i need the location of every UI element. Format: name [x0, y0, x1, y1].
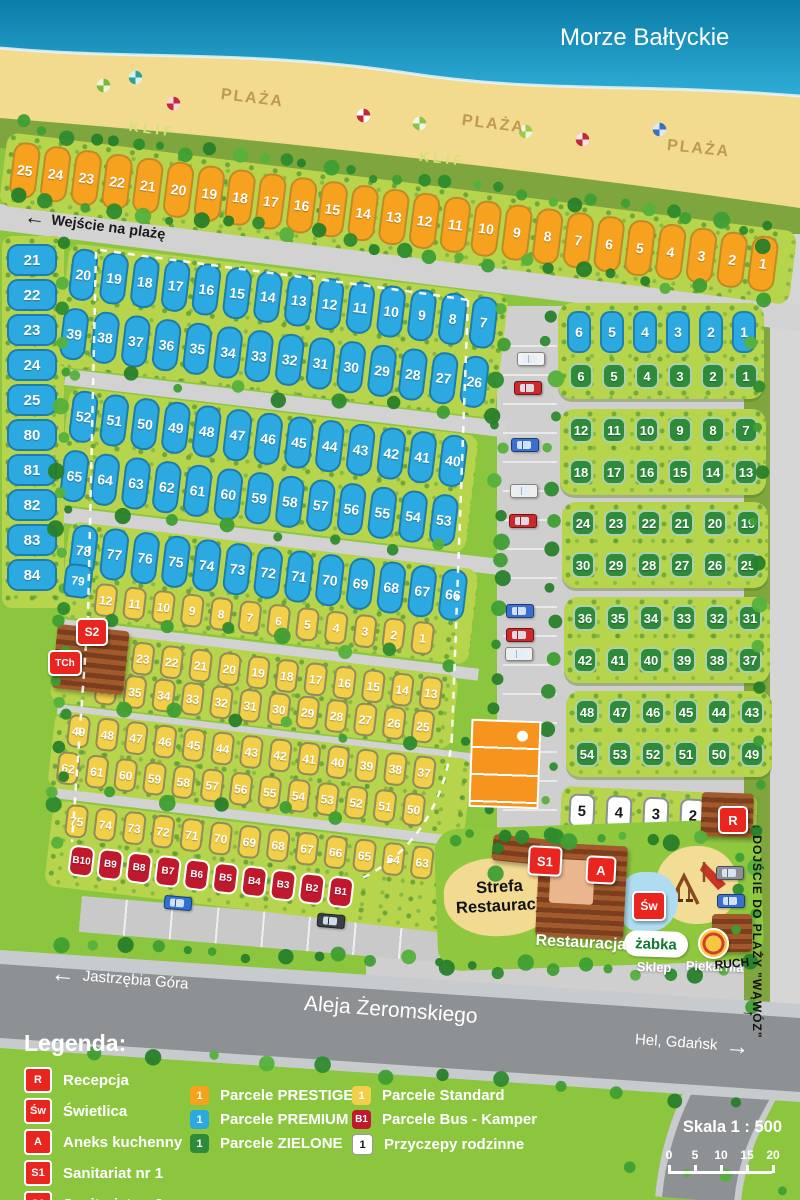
sea-label: Morze Bałtyckie: [560, 24, 729, 52]
plot-32: 32: [705, 605, 729, 631]
plot-8: 8: [437, 291, 469, 346]
plot-79: 79: [62, 562, 94, 599]
plot-17: 17: [602, 459, 626, 485]
plot-62: 62: [151, 460, 183, 515]
plot-B3: B3: [269, 868, 297, 902]
plot-3: 3: [668, 363, 692, 389]
plot-57: 57: [199, 768, 225, 803]
plot-36: 36: [573, 605, 597, 631]
plot-54: 54: [575, 741, 599, 767]
scale-tick-label: 15: [737, 1148, 757, 1162]
plot-75: 75: [64, 804, 90, 839]
shop-label: Sklep: [636, 959, 671, 975]
plot-40: 40: [437, 434, 469, 489]
plot-66: 66: [437, 568, 469, 623]
plot-75: 75: [160, 534, 192, 589]
plot-5: 5: [295, 607, 321, 642]
sanitary2-icon: S2: [24, 1191, 52, 1200]
plot-71: 71: [179, 817, 205, 852]
plot-50: 50: [707, 741, 731, 767]
plot-4: 4: [635, 363, 659, 389]
plot-20: 20: [162, 160, 196, 219]
plot-38: 38: [89, 310, 121, 365]
green-row-5: 302928272625: [571, 552, 769, 578]
plot-4: 4: [323, 610, 349, 645]
plot-1: 1: [732, 311, 756, 353]
scale-bar-line: [668, 1171, 772, 1174]
bakery-logo: [698, 928, 729, 959]
plot-60: 60: [212, 467, 244, 522]
plot-23: 23: [604, 510, 628, 536]
plot-21: 21: [7, 244, 57, 276]
plot-11: 11: [344, 280, 376, 335]
plot-48: 48: [95, 717, 121, 752]
plot-40: 40: [639, 647, 663, 673]
plot-7: 7: [562, 211, 596, 270]
plot-29: 29: [604, 552, 628, 578]
common-room-icon: Św: [24, 1098, 52, 1124]
plot-9: 9: [668, 417, 692, 443]
plot-23: 23: [7, 314, 57, 346]
plot-73: 73: [221, 542, 253, 597]
chem-toilet-icon: TCh: [48, 650, 82, 676]
plot-44: 44: [707, 699, 731, 725]
legend-title: Legenda:: [24, 1030, 195, 1057]
plot-58: 58: [274, 474, 306, 529]
plot-55: 55: [257, 775, 283, 810]
plot-39: 39: [354, 748, 380, 783]
plot-19: 19: [245, 655, 271, 690]
umbrella-icon: [575, 132, 590, 152]
plot-B10: B10: [67, 844, 95, 878]
plot-10: 10: [375, 284, 407, 339]
plot-33: 33: [243, 329, 275, 384]
plot-41: 41: [296, 741, 322, 776]
car-icon: [506, 628, 534, 642]
plot-3: 3: [685, 226, 719, 285]
legend-item-bus: B1 Parcele Bus - Kamper: [352, 1110, 537, 1129]
plot-21: 21: [131, 156, 165, 215]
plot-51: 51: [674, 741, 698, 767]
plot-7: 7: [237, 600, 263, 635]
plot-40: 40: [325, 745, 351, 780]
plot-34: 34: [639, 605, 663, 631]
plot-B6: B6: [182, 858, 210, 892]
prestige-icon: 1: [190, 1086, 209, 1105]
plot-9: 9: [406, 288, 438, 343]
plot-46: 46: [252, 411, 284, 466]
umbrella-icon: [356, 108, 371, 128]
plot-14: 14: [252, 269, 284, 324]
plot-22: 22: [100, 153, 134, 212]
legend-item-sanitary1: S1 Sanitariat nr 1: [24, 1160, 195, 1186]
plot-64: 64: [381, 841, 407, 876]
plot-13: 13: [283, 273, 315, 328]
plot-13: 13: [734, 459, 758, 485]
plot-41: 41: [406, 430, 438, 485]
plot-21: 21: [188, 648, 214, 683]
plot-3: 3: [352, 614, 378, 649]
plot-35: 35: [181, 321, 213, 376]
plot-14: 14: [346, 184, 380, 243]
plot-34: 34: [151, 678, 177, 713]
plot-32: 32: [208, 685, 234, 720]
plot-15: 15: [315, 180, 349, 239]
scale-tick-label: 5: [685, 1148, 705, 1162]
plot-82: 82: [7, 489, 57, 521]
plot-54: 54: [286, 778, 312, 813]
left-arrow-icon: ←: [23, 205, 47, 231]
family-icon: 1: [352, 1134, 373, 1155]
left-arrow-icon: ←: [50, 960, 76, 989]
plot-53: 53: [428, 493, 460, 548]
plot-46: 46: [641, 699, 665, 725]
umbrella-icon: [412, 116, 427, 136]
plot-50: 50: [401, 792, 427, 827]
plot-20: 20: [216, 651, 242, 686]
plot-30: 30: [571, 552, 595, 578]
plot-6: 6: [266, 603, 292, 638]
scale-tick-label: 0: [659, 1148, 679, 1162]
plot-31: 31: [305, 336, 337, 391]
green-block-3: 242322212019 302928272625: [562, 502, 768, 588]
plot-38: 38: [383, 751, 409, 786]
plot-2: 2: [701, 363, 725, 389]
plot-12: 12: [314, 277, 346, 332]
plot-39: 39: [58, 307, 90, 362]
plot-21: 21: [670, 510, 694, 536]
plot-25: 25: [410, 709, 436, 744]
plot-64: 64: [89, 452, 121, 507]
plot-67: 67: [294, 831, 320, 866]
plot-44: 44: [314, 419, 346, 474]
plot-10: 10: [151, 589, 177, 624]
plot-57: 57: [305, 478, 337, 533]
plot-15: 15: [221, 266, 253, 321]
plot-20: 20: [67, 247, 99, 302]
plot-12: 12: [93, 583, 119, 618]
plot-5: 5: [600, 311, 624, 353]
umbrella-icon: [128, 70, 143, 90]
plot-34: 34: [212, 325, 244, 380]
plot-76: 76: [129, 531, 161, 586]
green-row-1: 654321: [569, 363, 767, 389]
plot-2: 2: [699, 311, 723, 353]
legend-item-standard: 1 Parcele Standard: [352, 1086, 537, 1105]
plot-53: 53: [314, 782, 340, 817]
plot-56: 56: [336, 482, 368, 537]
car-icon: [514, 381, 542, 395]
plot-33: 33: [180, 681, 206, 716]
plot-20: 20: [703, 510, 727, 536]
premium-left-column: 21222324258081828384: [7, 244, 57, 591]
plot-6: 6: [592, 215, 626, 274]
ball-icon: [517, 730, 528, 741]
sanitary1-icon: S1: [24, 1160, 52, 1186]
plot-28: 28: [637, 552, 661, 578]
plot-45: 45: [283, 415, 315, 470]
plot-74: 74: [191, 538, 223, 593]
car-icon: [716, 866, 744, 880]
plot-15: 15: [360, 669, 386, 704]
plot-54: 54: [397, 489, 429, 544]
plot-49: 49: [66, 714, 92, 749]
plot-52: 52: [641, 741, 665, 767]
plot-8: 8: [531, 207, 565, 266]
umbrella-icon: [652, 122, 667, 142]
plot-12: 12: [569, 417, 593, 443]
plot-2: 2: [381, 617, 407, 652]
green-block-5: 484746454443 545352515049: [566, 691, 772, 777]
plot-36: 36: [151, 318, 183, 373]
plot-16: 16: [190, 262, 222, 317]
plot-5: 5: [623, 219, 657, 278]
car-icon: [511, 438, 539, 452]
plot-32: 32: [274, 332, 306, 387]
plot-56: 56: [228, 771, 254, 806]
premium-left-strip: 21222324258081828384: [2, 236, 64, 608]
plot-10: 10: [635, 417, 659, 443]
plot-6: 6: [567, 311, 591, 353]
plot-22: 22: [637, 510, 661, 536]
plot-4: 4: [633, 311, 657, 353]
plot-53: 53: [608, 741, 632, 767]
car-icon: [316, 913, 345, 929]
plot-50: 50: [129, 397, 161, 452]
plot-62: 62: [55, 751, 81, 786]
plot-23: 23: [130, 641, 156, 676]
plot-9: 9: [179, 593, 205, 628]
plot-8: 8: [208, 596, 234, 631]
plot-67: 67: [406, 564, 438, 619]
plot-31: 31: [738, 605, 762, 631]
plot-73: 73: [121, 811, 147, 846]
plot-18: 18: [223, 168, 257, 227]
plot-19: 19: [192, 164, 226, 223]
plot-42: 42: [267, 738, 293, 773]
plot-25: 25: [8, 141, 42, 200]
plot-42: 42: [375, 426, 407, 481]
green-block-4: 363534333231 424140393837: [564, 597, 770, 683]
plot-17: 17: [303, 662, 329, 697]
gorge-access-label: ↓ DOJŚCIE DO PLAŻY "WĄWÓZ": [750, 824, 764, 1020]
green-row-2: 121110987: [569, 417, 767, 443]
plot-7: 7: [734, 417, 758, 443]
down-arrow-icon: ↓: [750, 824, 764, 835]
plot-17: 17: [254, 172, 288, 231]
plot-51: 51: [98, 393, 130, 448]
legend-item-reception: R Recepcja: [24, 1067, 195, 1093]
plot-10: 10: [469, 199, 503, 258]
sanitary2-icon: S2: [76, 618, 108, 646]
plot-25: 25: [736, 552, 760, 578]
car-icon: [163, 895, 192, 911]
plot-69: 69: [345, 556, 377, 611]
plot-15: 15: [668, 459, 692, 485]
plot-65: 65: [352, 838, 378, 873]
plot-58: 58: [170, 764, 196, 799]
plot-77: 77: [98, 527, 130, 582]
plot-43: 43: [740, 699, 764, 725]
plot-80: 80: [7, 419, 57, 451]
plot-47: 47: [221, 408, 253, 463]
car-icon: [717, 894, 745, 908]
green-row-7: 424140393837: [573, 647, 771, 673]
kitchen-icon: A: [24, 1129, 52, 1155]
plot-6: 6: [569, 363, 593, 389]
plot-55: 55: [366, 486, 398, 541]
plot-16: 16: [635, 459, 659, 485]
scale-bar: 05101520: [668, 1148, 778, 1176]
car-icon: [509, 514, 537, 528]
plot-4: 4: [654, 223, 688, 282]
zielone-icon: 1: [190, 1134, 209, 1153]
legend-item-kitchen: A Aneks kuchenny: [24, 1129, 195, 1155]
plot-45: 45: [674, 699, 698, 725]
umbrella-icon: [166, 96, 181, 116]
plot-25: 25: [7, 384, 57, 416]
plot-27: 27: [352, 702, 378, 737]
plot-61: 61: [182, 463, 214, 518]
plot-48: 48: [191, 404, 223, 459]
green-row-8: 484746454443: [575, 699, 773, 725]
plot-59: 59: [142, 761, 168, 796]
plot-29: 29: [295, 695, 321, 730]
plot-35: 35: [122, 674, 148, 709]
plot-22: 22: [159, 645, 185, 680]
standard-icon: 1: [352, 1086, 371, 1105]
car-icon: [505, 647, 533, 661]
plot-68: 68: [265, 828, 291, 863]
plot-41: 41: [606, 647, 630, 673]
plot-84: 84: [7, 559, 57, 591]
plot-1: 1: [734, 363, 758, 389]
plot-24: 24: [571, 510, 595, 536]
plot-5: 5: [568, 793, 595, 828]
plot-24: 24: [7, 349, 57, 381]
reception-icon: R: [24, 1067, 52, 1093]
plot-63: 63: [120, 456, 152, 511]
plot-26: 26: [458, 355, 490, 410]
green-row-4: 242322212019: [571, 510, 769, 536]
zabka-logo: żabka: [624, 930, 689, 958]
green-row-9: 545352515049: [575, 741, 773, 767]
plot-61: 61: [84, 754, 110, 789]
plot-70: 70: [314, 553, 346, 608]
plot-12: 12: [408, 191, 442, 250]
right-premium-row: 654321: [567, 311, 765, 353]
plot-42: 42: [573, 647, 597, 673]
scale-tick: [772, 1165, 775, 1173]
plot-72: 72: [150, 814, 176, 849]
plot-31: 31: [237, 688, 263, 723]
scale-label: Skala 1 : 500: [682, 1118, 782, 1137]
legend-item-prestige: 1 Parcele PRESTIGE: [190, 1086, 353, 1105]
plot-71: 71: [283, 549, 315, 604]
legend-item-sanitary2: S2 Sanitariat nr 2: [24, 1191, 195, 1200]
plot-30: 30: [266, 692, 292, 727]
plot-28: 28: [397, 347, 429, 402]
plot-19: 19: [736, 510, 760, 536]
plot-24: 24: [39, 145, 73, 204]
right-arrow-icon: →: [724, 1032, 750, 1061]
plot-59: 59: [243, 471, 275, 526]
plot-52: 52: [343, 785, 369, 820]
plot-68: 68: [375, 560, 407, 615]
plot-1: 1: [746, 234, 780, 293]
plot-19: 19: [98, 251, 130, 306]
plot-11: 11: [602, 417, 626, 443]
plot-18: 18: [274, 658, 300, 693]
plot-47: 47: [608, 699, 632, 725]
plot-9: 9: [500, 203, 534, 262]
plot-47: 47: [123, 721, 149, 756]
plot-B7: B7: [154, 855, 182, 889]
plot-11: 11: [122, 586, 148, 621]
plot-22: 22: [7, 279, 57, 311]
legend-parcels-col1: 1 Parcele PRESTIGE 1 Parcele PREMIUM 1 P…: [190, 1086, 353, 1158]
plot-B4: B4: [240, 865, 268, 899]
plot-43: 43: [239, 734, 265, 769]
plot-7: 7: [468, 295, 500, 350]
plot-38: 38: [705, 647, 729, 673]
car-icon: [510, 484, 538, 498]
plot-27: 27: [670, 552, 694, 578]
plot-B2: B2: [298, 872, 326, 906]
plot-13: 13: [377, 188, 411, 247]
plot-26: 26: [381, 705, 407, 740]
green-row-6: 363534333231: [573, 605, 771, 631]
plot-43: 43: [345, 422, 377, 477]
plot-81: 81: [7, 454, 57, 486]
plot-49: 49: [160, 400, 192, 455]
plot-37: 37: [738, 647, 762, 673]
kitchen-icon: A: [585, 855, 616, 885]
plot-17: 17: [160, 258, 192, 313]
plot-52: 52: [68, 389, 100, 444]
plot-B9: B9: [96, 848, 124, 882]
plot-B5: B5: [211, 861, 239, 895]
plot-65: 65: [58, 449, 90, 504]
plot-29: 29: [366, 343, 398, 398]
scale-tick-label: 10: [711, 1148, 731, 1162]
plot-37: 37: [120, 314, 152, 369]
plot-39: 39: [672, 647, 696, 673]
volleyball-court: [468, 719, 541, 809]
plot-13: 13: [418, 675, 444, 710]
plot-49: 49: [740, 741, 764, 767]
scale-tick-label: 20: [763, 1148, 783, 1162]
plot-66: 66: [323, 835, 349, 870]
plot-18: 18: [569, 459, 593, 485]
car-icon: [517, 352, 545, 366]
plot-72: 72: [252, 545, 284, 600]
green-row-3: 181716151413: [569, 459, 767, 485]
plot-63: 63: [409, 845, 435, 880]
plot-28: 28: [324, 698, 350, 733]
plot-8: 8: [701, 417, 725, 443]
plot-B8: B8: [125, 851, 153, 885]
legend-item-zielone: 1 Parcele ZIELONE: [190, 1134, 353, 1153]
plot-60: 60: [113, 758, 139, 793]
plot-2: 2: [715, 230, 749, 289]
plot-37: 37: [411, 755, 437, 790]
plot-5: 5: [602, 363, 626, 389]
plot-74: 74: [93, 807, 119, 842]
plot-45: 45: [181, 727, 207, 762]
legend-item-family: 1 Przyczepy rodzinne: [352, 1134, 537, 1155]
legend: Legenda: R Recepcja Św Świetlica A Aneks…: [24, 1030, 195, 1200]
